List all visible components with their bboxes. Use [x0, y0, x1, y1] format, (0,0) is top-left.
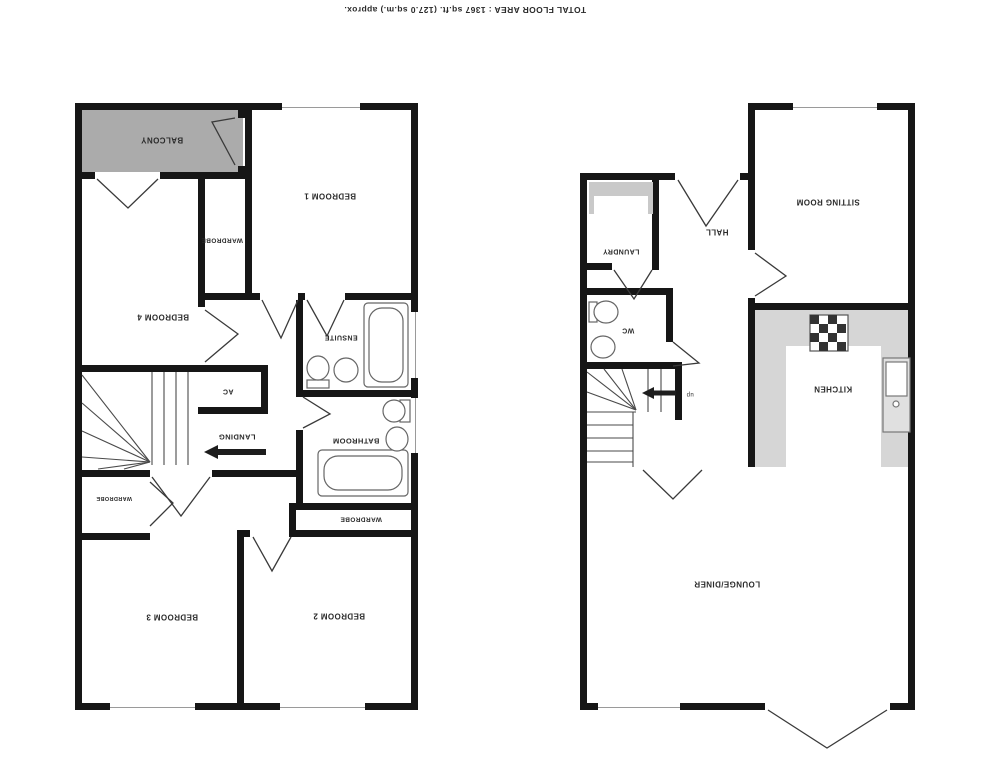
room-label-bedroom4: BEDROOM 4: [137, 313, 189, 322]
sink-icon: [386, 427, 408, 451]
room-label-wardrobe-mid: WARDROBE: [340, 516, 382, 523]
sink-icon: [591, 336, 615, 358]
room-label-ac: AC: [223, 388, 234, 395]
room-label-balcony: BALCONY: [141, 136, 183, 145]
floorplan-image: TOTAL FLOOR AREA : 1367 sq.ft. (127.0 sq…: [0, 0, 1000, 775]
room-label-sitting-room: SITTING ROOM: [796, 198, 859, 207]
toilet-icon: [307, 356, 329, 388]
stairs-direction-arrow: [642, 387, 676, 399]
room-label-landing: LANDING: [219, 433, 256, 442]
laundry-counter-icon: [589, 182, 653, 214]
bath-icon: [364, 303, 408, 387]
room-label-hall: HALL: [706, 228, 729, 237]
room-label-wardrobe-bed3: WARDROBE: [96, 495, 132, 501]
staircase-ground-floor: [587, 369, 661, 467]
toilet-icon: [589, 301, 618, 323]
bath-icon: [318, 450, 408, 496]
room-label-bedroom2: BEDROOM 2: [313, 612, 365, 621]
room-label-wardrobe-top: WARDROBE: [201, 237, 243, 244]
door-marks: [97, 118, 887, 748]
hob-icon: [810, 315, 848, 351]
toilet-icon: [383, 400, 410, 422]
room-label-bathroom: BATHROOM: [333, 437, 380, 446]
room-label-lounge-diner: LOUNGE/DINER: [694, 580, 760, 589]
room-label-ensuite: ENSUITE: [324, 334, 357, 341]
stairs-direction-arrow: [204, 445, 266, 459]
room-label-bedroom1: BEDROOM 1: [304, 192, 356, 201]
page-title: TOTAL FLOOR AREA : 1367 sq.ft. (127.0 sq…: [344, 5, 586, 15]
staircase-first-floor: [82, 372, 188, 469]
room-label-wc: WC: [622, 327, 634, 334]
room-label-bedroom3: BEDROOM 3: [146, 613, 198, 622]
sink-icon: [334, 358, 358, 382]
room-label-kitchen: KITCHEN: [814, 385, 852, 394]
kitchen-sink-icon: [883, 358, 910, 432]
stairs-up-label: up: [686, 391, 693, 397]
room-label-laundry: LAUNDRY: [603, 248, 640, 255]
